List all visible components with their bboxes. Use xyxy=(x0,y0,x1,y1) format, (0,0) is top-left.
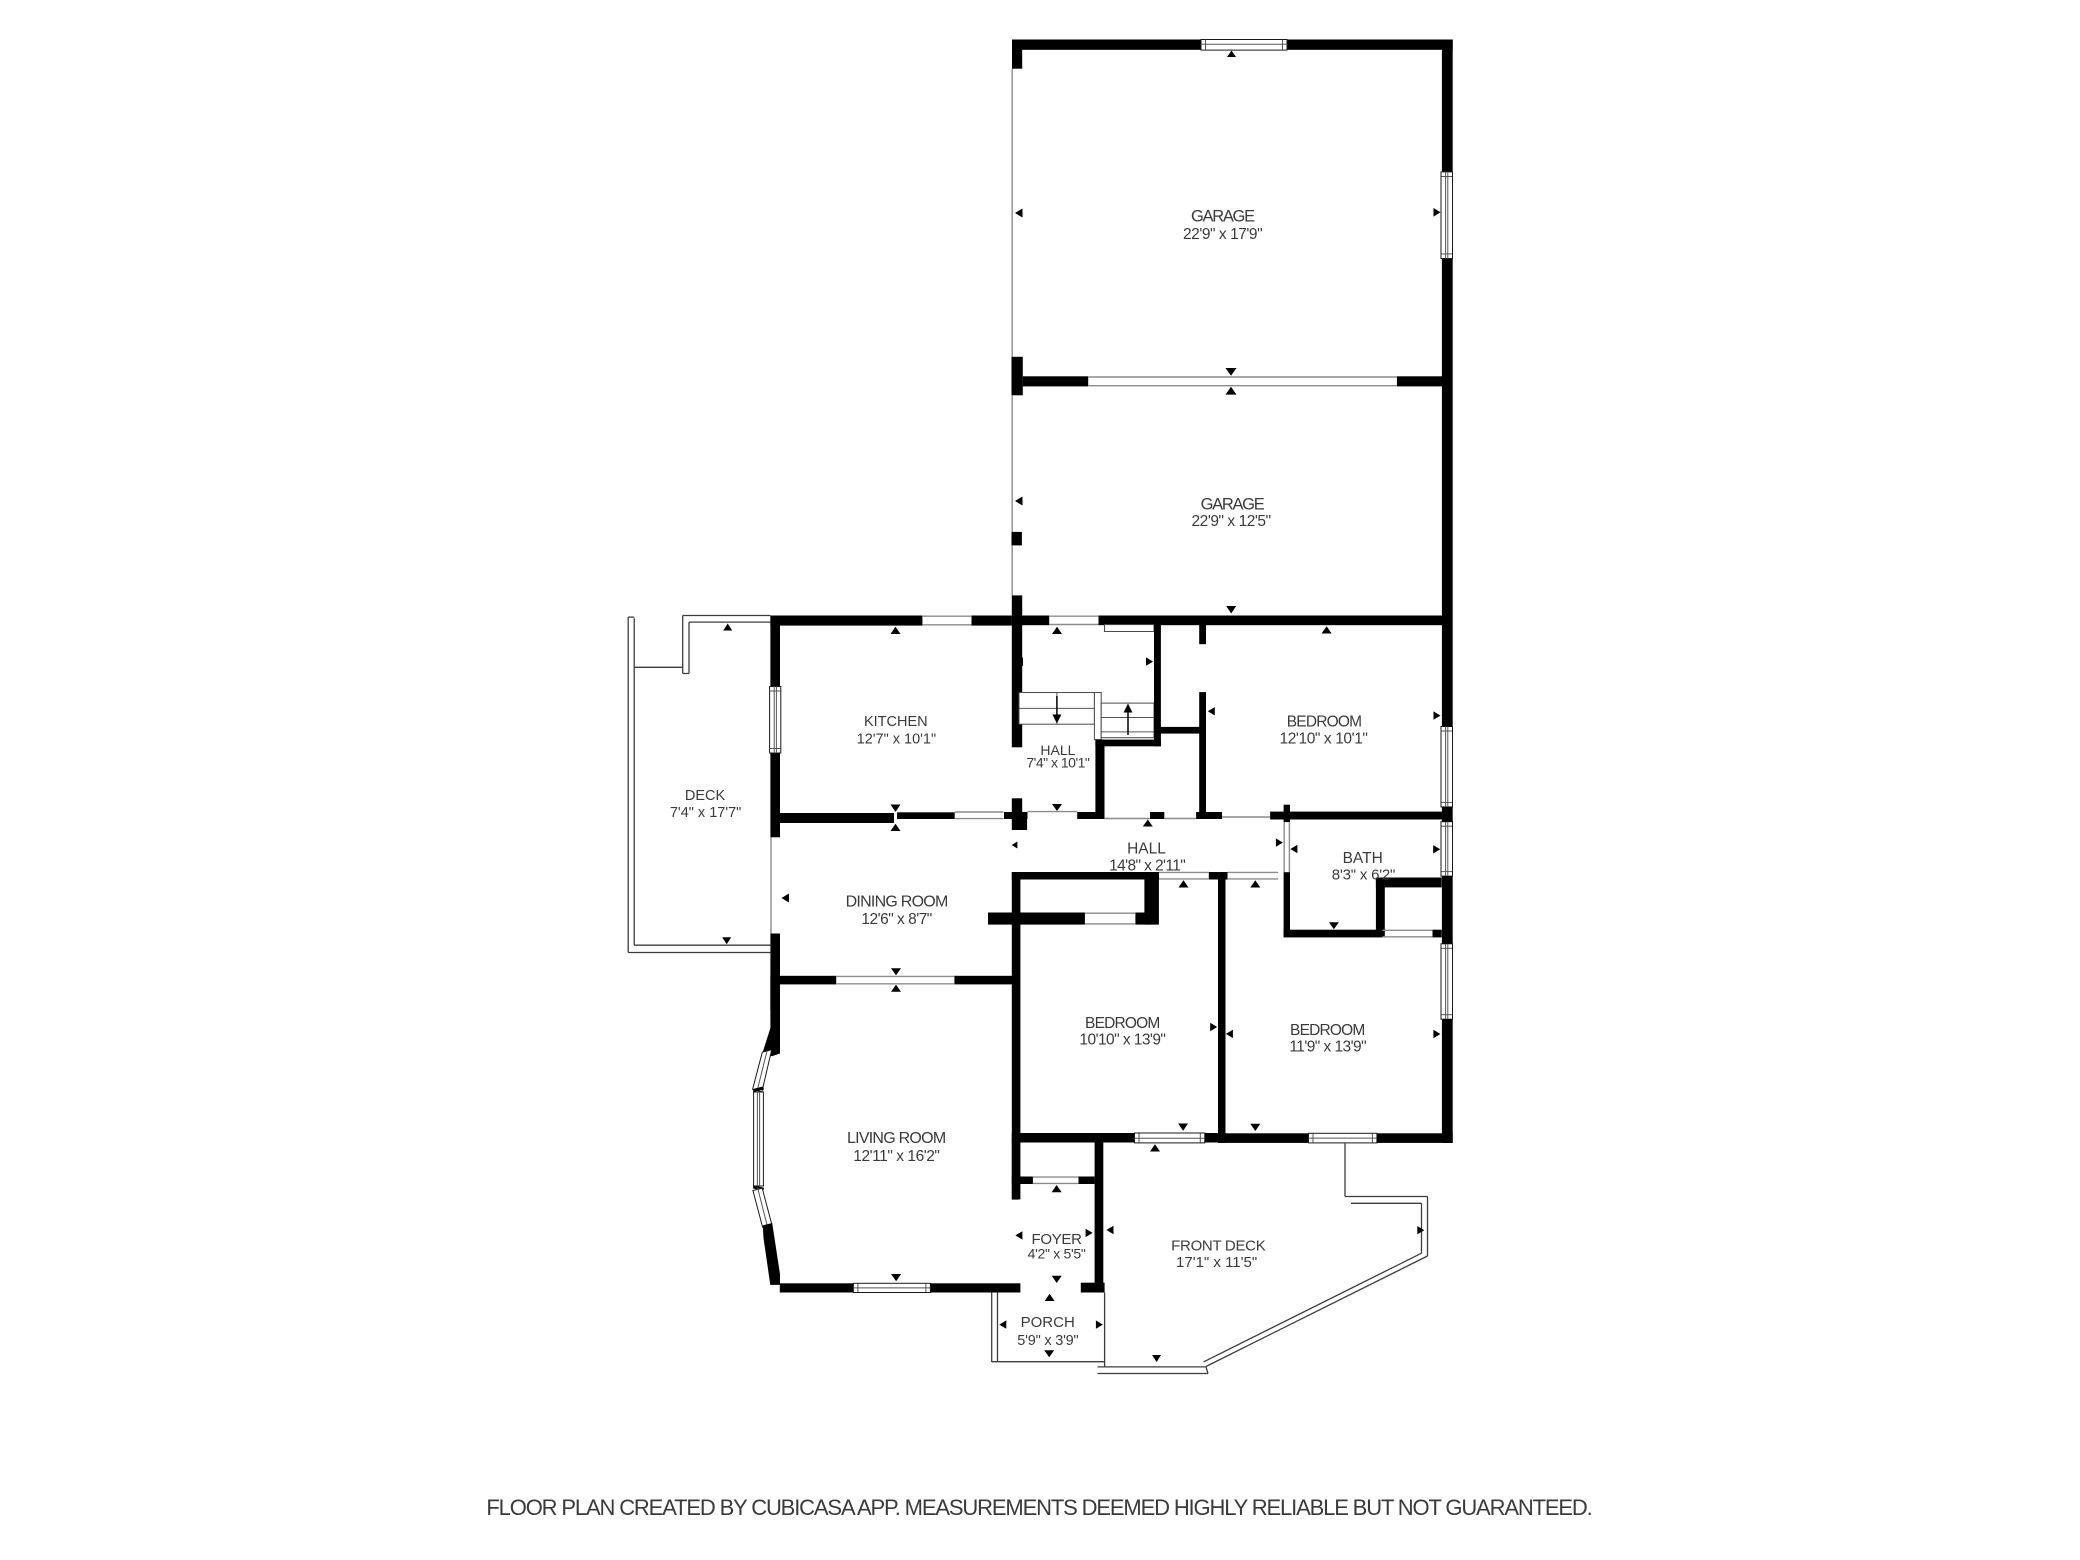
svg-text:12'11" x 16'2": 12'11" x 16'2" xyxy=(853,1148,939,1165)
svg-text:12'6" x 8'7": 12'6" x 8'7" xyxy=(861,911,931,928)
svg-text:12'10" x 10'1": 12'10" x 10'1" xyxy=(1279,730,1367,747)
svg-text:KITCHEN: KITCHEN xyxy=(864,714,928,730)
svg-text:22'9" x 17'9": 22'9" x 17'9" xyxy=(1183,226,1262,243)
svg-text:GARAGE: GARAGE xyxy=(1201,495,1265,513)
svg-text:7'4" x 17'7": 7'4" x 17'7" xyxy=(670,805,741,821)
svg-text:HALL: HALL xyxy=(1127,841,1166,858)
svg-text:7'4" x 10'1": 7'4" x 10'1" xyxy=(1026,755,1090,771)
svg-text:22'9" x 12'5": 22'9" x 12'5" xyxy=(1192,513,1271,530)
svg-text:10'10" x 13'9": 10'10" x 13'9" xyxy=(1079,1032,1165,1049)
svg-text:DINING ROOM: DINING ROOM xyxy=(846,894,948,911)
svg-text:PORCH: PORCH xyxy=(1021,1314,1075,1331)
svg-text:BATH: BATH xyxy=(1343,850,1383,867)
svg-text:12'7" x 10'1": 12'7" x 10'1" xyxy=(857,732,937,748)
svg-text:14'8" x 2'11": 14'8" x 2'11" xyxy=(1109,857,1185,874)
svg-text:LIVING ROOM: LIVING ROOM xyxy=(847,1130,946,1147)
svg-text:FRONT DECK: FRONT DECK xyxy=(1171,1237,1266,1254)
svg-text:BEDROOM: BEDROOM xyxy=(1290,1022,1365,1039)
svg-text:BEDROOM: BEDROOM xyxy=(1287,714,1362,731)
svg-text:GARAGE: GARAGE xyxy=(1191,208,1255,226)
svg-text:17'1" x 11'5": 17'1" x 11'5" xyxy=(1176,1254,1257,1271)
svg-text:BEDROOM: BEDROOM xyxy=(1085,1015,1160,1032)
svg-text:FLOOR PLAN CREATED BY CUBICASA: FLOOR PLAN CREATED BY CUBICASA APP. MEAS… xyxy=(486,1495,1591,1520)
svg-text:11'9" x 13'9": 11'9" x 13'9" xyxy=(1289,1039,1366,1056)
svg-text:5'9" x 3'9": 5'9" x 3'9" xyxy=(1017,1333,1078,1349)
svg-text:8'3" x 6'2": 8'3" x 6'2" xyxy=(1332,866,1395,883)
svg-text:DECK: DECK xyxy=(685,788,726,804)
svg-text:4'2" x 5'5": 4'2" x 5'5" xyxy=(1028,1246,1086,1262)
